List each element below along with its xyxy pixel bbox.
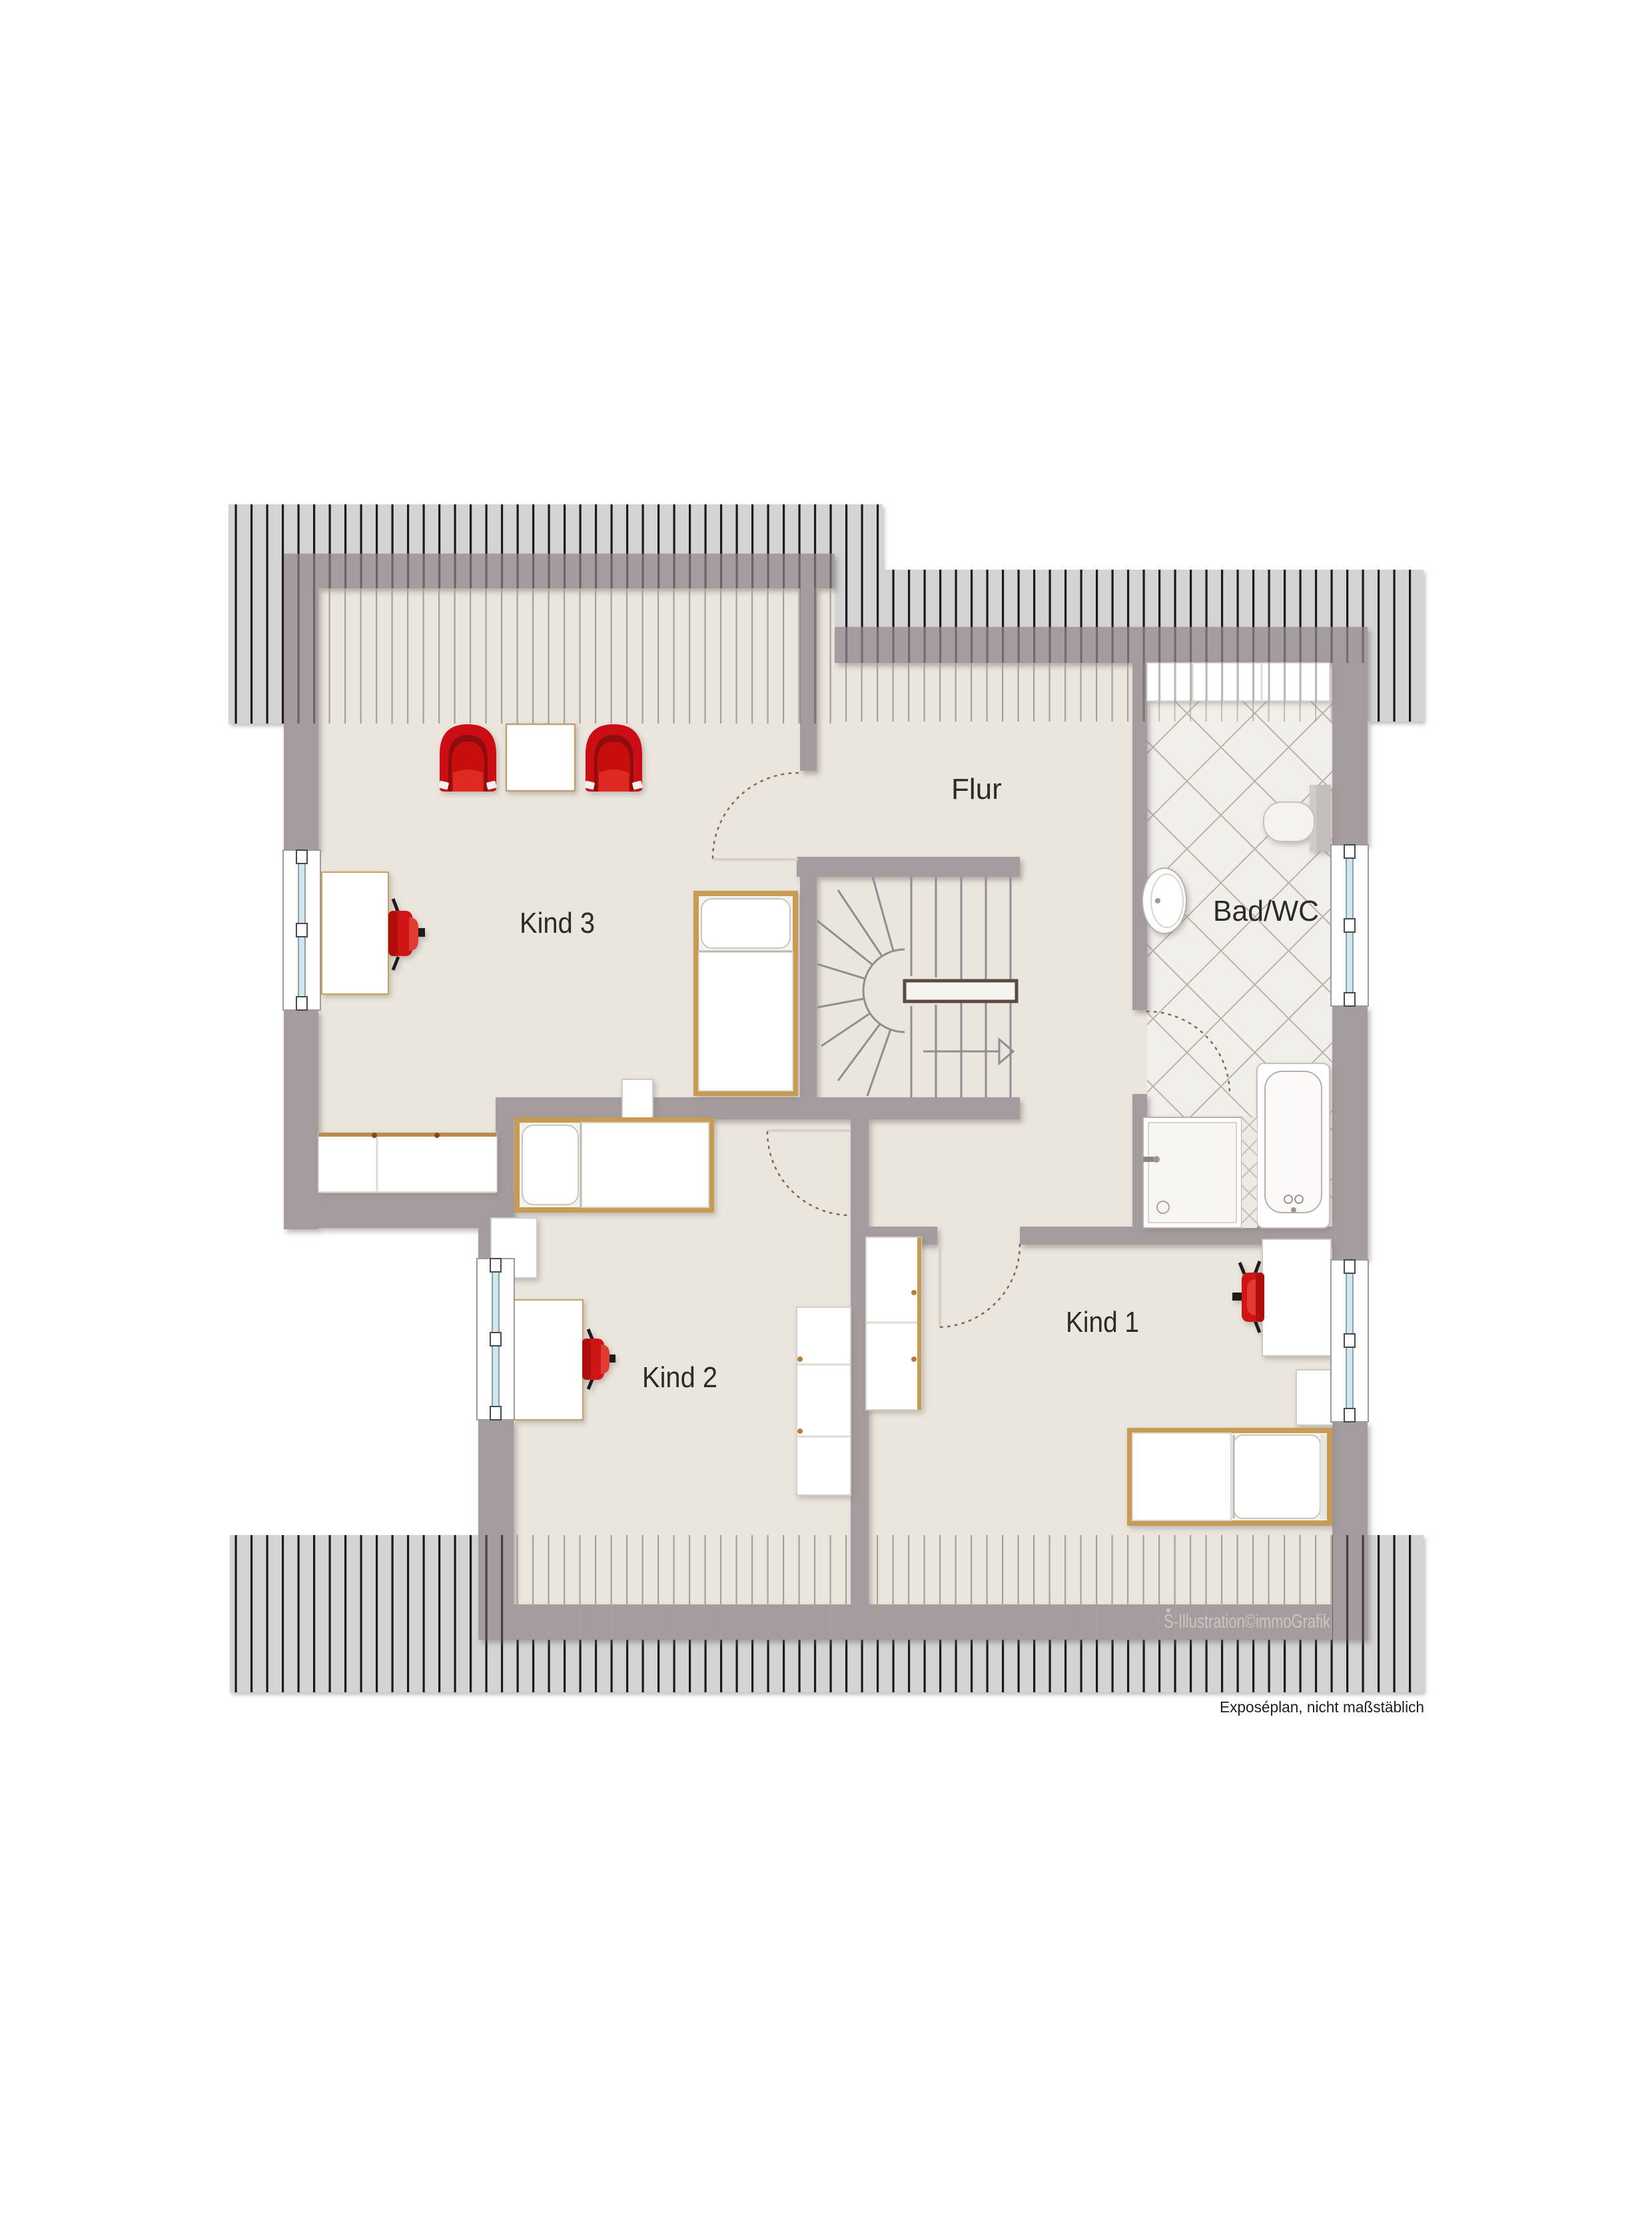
svg-text:Exposéplan, nicht maßstäblich: Exposéplan, nicht maßstäblich [1220, 1698, 1424, 1716]
svg-text:Kind 2: Kind 2 [642, 1361, 717, 1394]
svg-text:S-Illustration©immoGrafik: S-Illustration©immoGrafik [1164, 1611, 1330, 1632]
svg-text:Flur: Flur [951, 773, 1002, 806]
svg-text:Bad/WC: Bad/WC [1213, 895, 1319, 927]
svg-text:Kind 3: Kind 3 [520, 907, 595, 939]
svg-text:Kind 1: Kind 1 [1066, 1306, 1139, 1339]
